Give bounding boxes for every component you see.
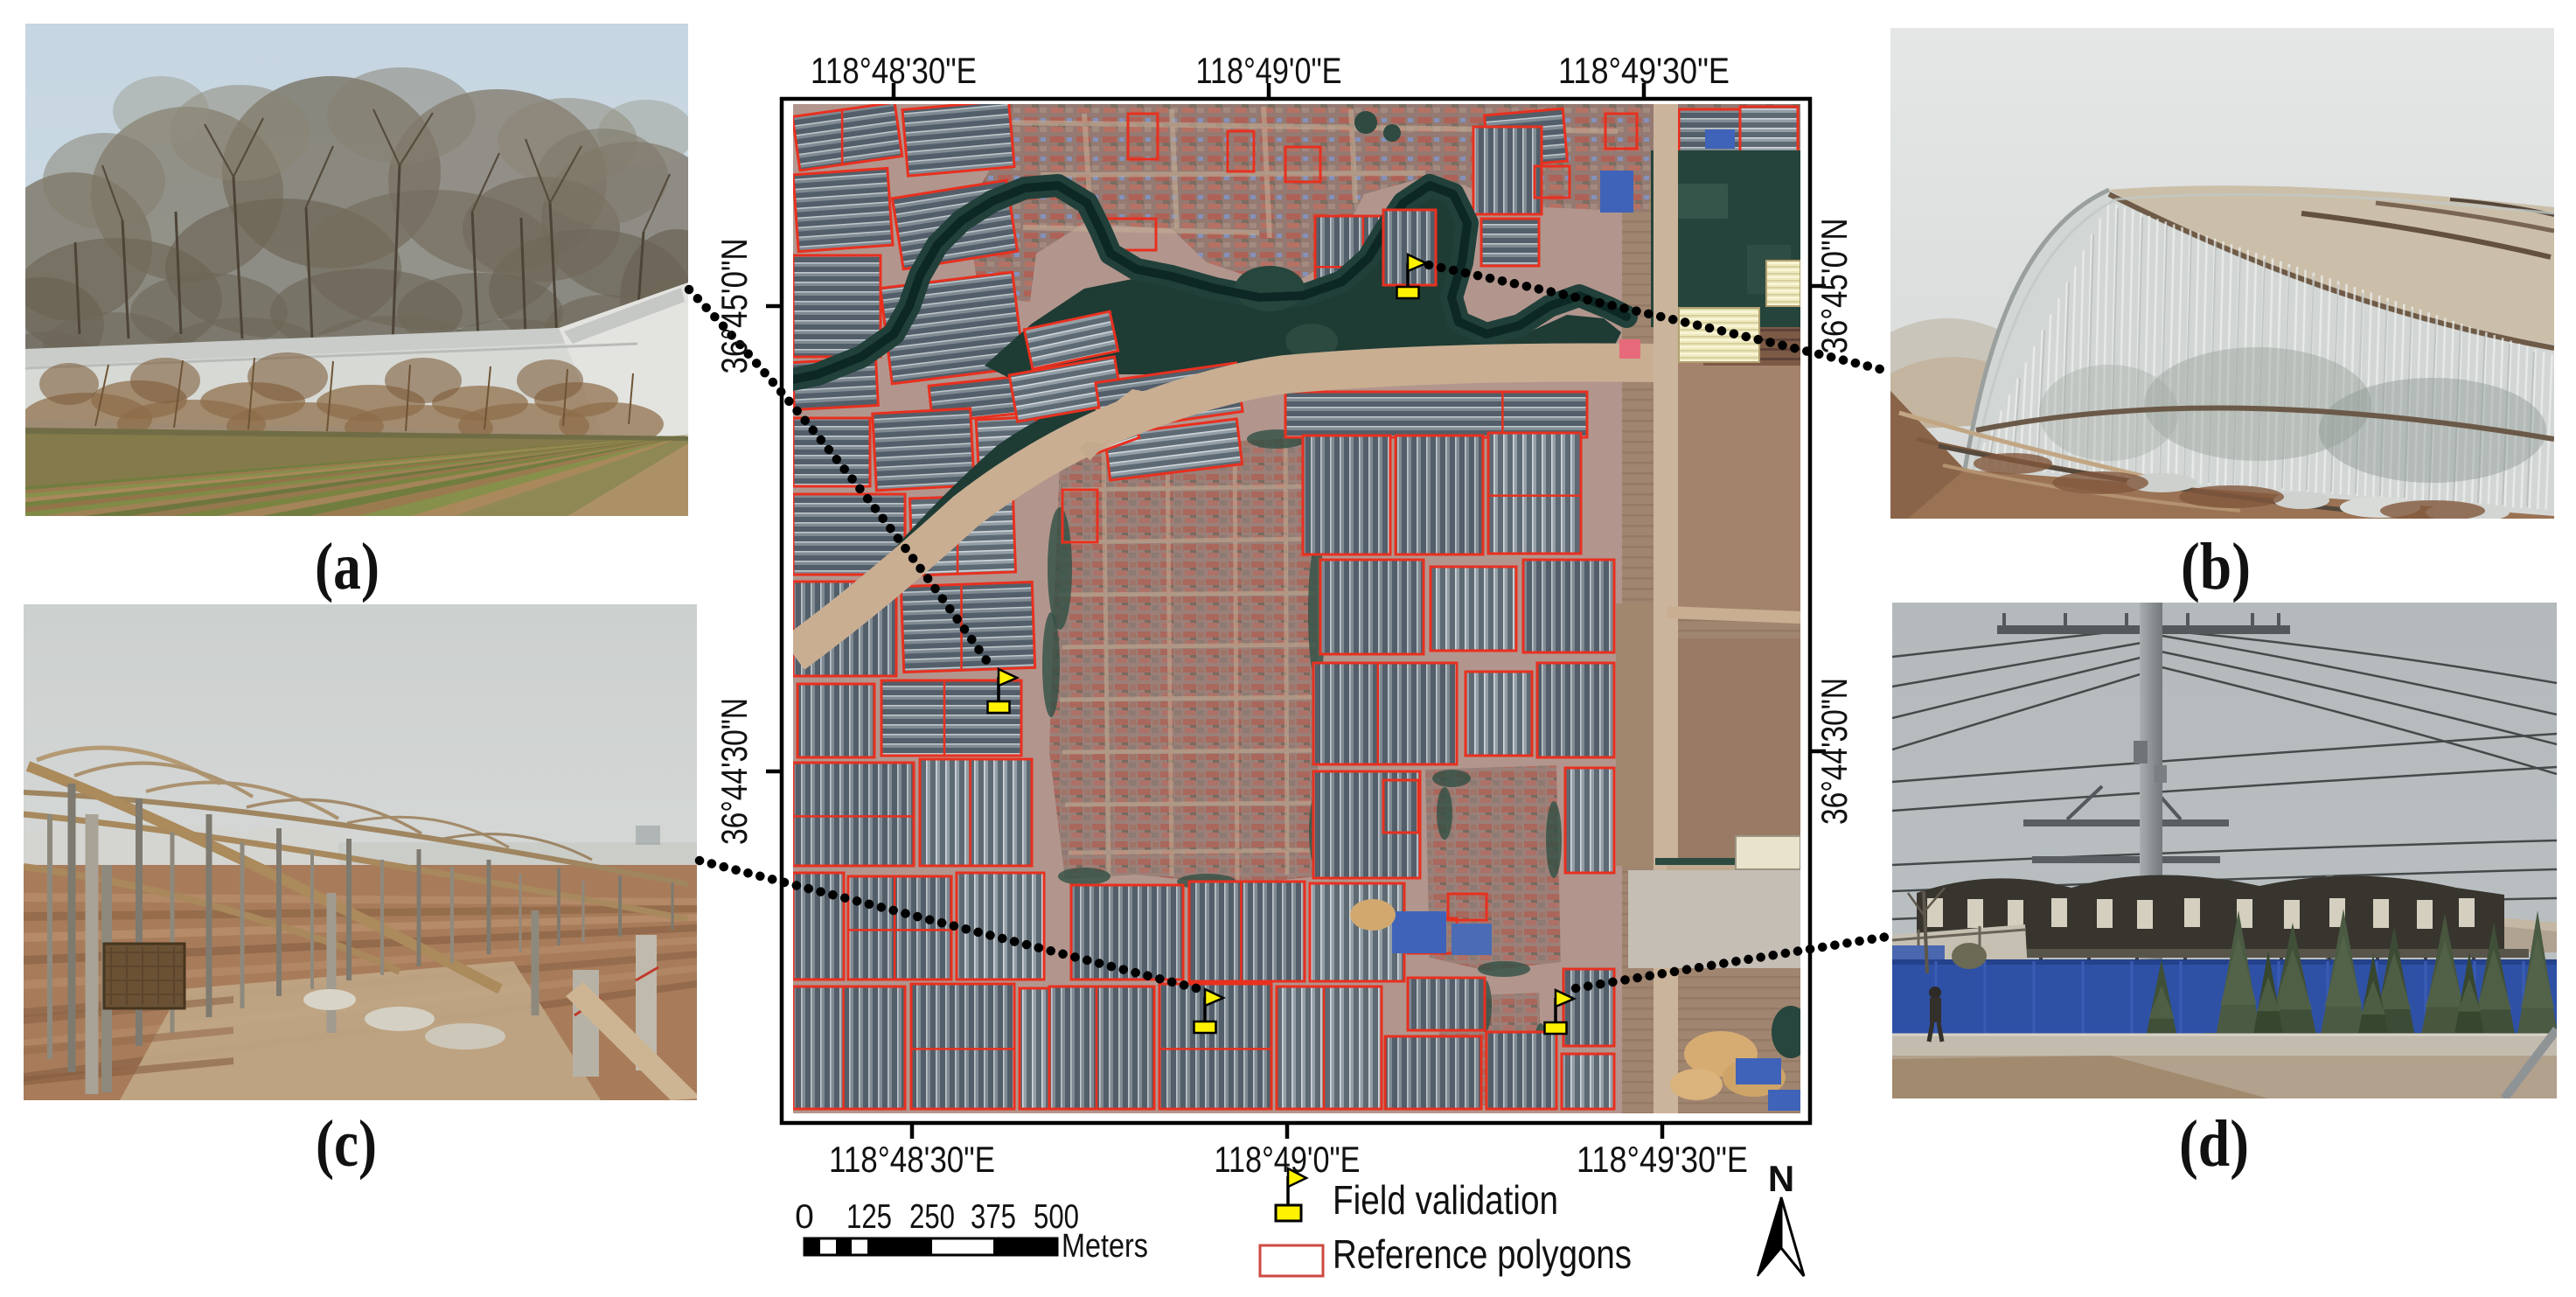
svg-text:250: 250	[909, 1198, 955, 1236]
svg-text:118°48'30"E: 118°48'30"E	[811, 50, 977, 91]
svg-text:36°45'0"N: 36°45'0"N	[1814, 219, 1855, 354]
svg-text:125: 125	[846, 1198, 892, 1236]
svg-text:375: 375	[971, 1198, 1016, 1236]
svg-text:118°48'30"E: 118°48'30"E	[829, 1139, 995, 1180]
svg-text:Meters: Meters	[1062, 1228, 1148, 1265]
svg-text:36°44'30"N: 36°44'30"N	[1814, 678, 1855, 825]
svg-text:0: 0	[795, 1198, 814, 1236]
svg-text:(c): (c)	[316, 1107, 377, 1181]
svg-text:118°49'30"E: 118°49'30"E	[1558, 50, 1730, 91]
svg-text:(d): (d)	[2179, 1107, 2249, 1181]
svg-text:Reference polygons: Reference polygons	[1333, 1231, 1632, 1277]
svg-text:(b): (b)	[2181, 530, 2251, 603]
svg-text:36°44'30"N: 36°44'30"N	[714, 698, 755, 845]
svg-text:118°49'30"E: 118°49'30"E	[1577, 1139, 1748, 1180]
svg-text:N: N	[1768, 1158, 1794, 1199]
svg-text:(a): (a)	[315, 530, 379, 603]
svg-text:36°45'0"N: 36°45'0"N	[714, 239, 755, 374]
svg-text:Field validation: Field validation	[1333, 1177, 1558, 1223]
svg-text:118°49'0"E: 118°49'0"E	[1196, 50, 1342, 91]
